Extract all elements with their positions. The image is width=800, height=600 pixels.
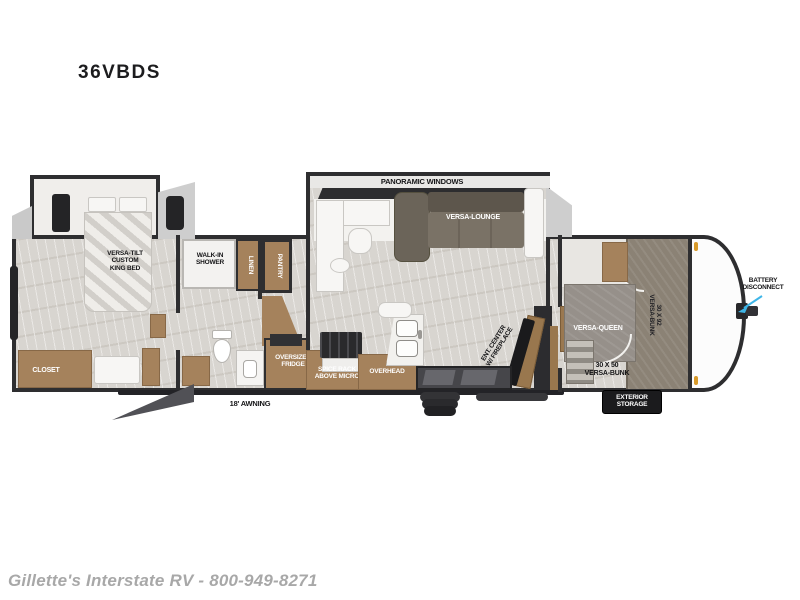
toilet-tank [212, 330, 232, 339]
faucet-icon [418, 330, 422, 339]
pillow [119, 197, 147, 212]
dresser [142, 348, 160, 386]
chair [330, 258, 350, 273]
sofa-chaise [394, 192, 430, 262]
floorplan-page: 36VBDS VERSA-TILT CUSTOM KING BED CLOSET… [0, 0, 800, 600]
island-inset [460, 370, 497, 385]
bunk-30x50-label: 30 X 50 VERSA-BUNK [572, 362, 642, 378]
battery-arrow-icon [736, 292, 766, 316]
panoramic-windows-label: PANORAMIC WINDOWS [310, 178, 534, 186]
window-icon [52, 194, 70, 232]
ent-center-wood [550, 326, 558, 390]
dealer-footer: Gillette's Interstate RV - 800-949-8271 [8, 571, 317, 591]
walk-in-shower-label: WALK-IN SHOWER [183, 252, 237, 267]
kitchen-sink [396, 320, 418, 337]
pillow [88, 197, 116, 212]
linen-label: LINEN [242, 239, 254, 291]
model-title: 36VBDS [78, 62, 161, 84]
entry-step [424, 406, 456, 416]
roof-wedge-living-right [546, 186, 572, 237]
bathroom-bench [182, 356, 210, 386]
pantry-label: PANTRY [271, 241, 283, 291]
bathroom-wall [176, 235, 180, 313]
dinette-table [348, 228, 372, 254]
awning-label: 18' AWNING [200, 400, 300, 408]
entry-rail [476, 393, 548, 401]
overhead-label: OVERHEAD [360, 368, 414, 375]
dinette-bench [316, 200, 344, 292]
table [378, 302, 412, 318]
king-bed-label: VERSA-TILT CUSTOM KING BED [92, 250, 158, 272]
bench [94, 356, 140, 384]
closet-label: CLOSET [20, 367, 72, 375]
battery-disconnect-label: BATTERY DISCONNECT [734, 277, 792, 292]
bathroom-wall [176, 350, 180, 392]
sofa-corner-panel [524, 188, 544, 258]
roof-wedge-left [12, 206, 32, 239]
exterior-storage-label: EXTERIOR STORAGE [602, 394, 662, 409]
bathroom-sink [243, 360, 257, 378]
versa-lounge-label: VERSA-LOUNGE [418, 214, 528, 222]
clearance-marker [694, 376, 698, 385]
kitchen-sink [396, 340, 418, 357]
stove [320, 332, 362, 358]
bunk-30x92-label: 30 X 92 VERSA-BUNK [642, 269, 662, 361]
versa-queen-label: VERSA-QUEEN [562, 325, 634, 333]
island-inset [422, 370, 455, 385]
window-icon [10, 266, 18, 340]
clearance-marker [694, 242, 698, 251]
window-icon [166, 196, 184, 230]
bunkroom-wall [558, 368, 562, 392]
fridge-top [270, 334, 302, 346]
bunk-cabinet [602, 242, 628, 282]
sofa-back [428, 192, 524, 212]
nightstand [150, 314, 166, 338]
